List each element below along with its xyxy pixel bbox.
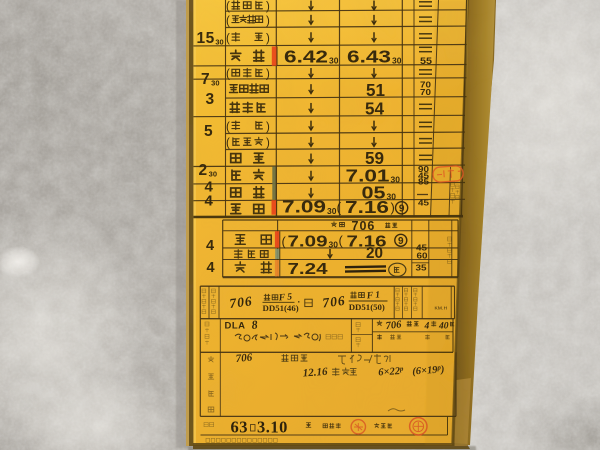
- svg-text:63: 63: [231, 417, 249, 436]
- svg-text:4: 4: [205, 193, 214, 210]
- svg-text:30: 30: [391, 175, 401, 185]
- svg-text:7.09: 7.09: [282, 197, 326, 217]
- svg-text:51: 51: [366, 80, 385, 100]
- svg-text:5: 5: [204, 123, 213, 140]
- svg-text:): ): [266, 33, 270, 45]
- svg-text:30: 30: [327, 206, 337, 216]
- svg-text:DD51(46): DD51(46): [263, 303, 299, 313]
- svg-text:2: 2: [199, 162, 208, 179]
- svg-text:F 1: F 1: [365, 290, 380, 301]
- svg-text:6.42: 6.42: [284, 47, 328, 67]
- svg-text:30: 30: [209, 170, 217, 179]
- svg-text:20: 20: [366, 245, 383, 262]
- svg-text:7: 7: [201, 71, 210, 88]
- svg-text:3.10: 3.10: [257, 417, 288, 436]
- svg-text:(: (: [226, 16, 230, 28]
- svg-text:7.16: 7.16: [345, 197, 389, 217]
- svg-text:(: (: [226, 1, 230, 13]
- svg-text:(: (: [226, 33, 230, 45]
- svg-text:15: 15: [197, 30, 215, 47]
- svg-text:): ): [266, 16, 270, 28]
- svg-text:12.16: 12.16: [302, 366, 328, 380]
- svg-text:30: 30: [329, 240, 339, 250]
- svg-text:7.24: 7.24: [288, 261, 328, 278]
- svg-text:55: 55: [420, 56, 432, 66]
- svg-text:DLA: DLA: [225, 320, 246, 331]
- svg-text:40: 40: [438, 322, 449, 332]
- svg-text:3: 3: [206, 91, 215, 108]
- svg-text:706: 706: [385, 319, 403, 332]
- svg-text:85: 85: [418, 177, 429, 187]
- svg-text:706: 706: [235, 352, 253, 365]
- svg-text:9: 9: [399, 203, 405, 214]
- svg-text:): ): [391, 200, 395, 215]
- svg-text:(: (: [339, 233, 344, 248]
- svg-text:60: 60: [417, 250, 428, 260]
- svg-text:DD51(50): DD51(50): [349, 302, 385, 312]
- svg-text:706: 706: [322, 293, 347, 311]
- svg-text:54: 54: [365, 99, 384, 119]
- svg-text:(: (: [226, 121, 230, 133]
- svg-text:): ): [266, 69, 270, 81]
- svg-text:(: (: [226, 69, 230, 81]
- svg-text:4: 4: [206, 238, 214, 254]
- svg-text:706: 706: [229, 293, 254, 311]
- svg-text:30: 30: [392, 56, 402, 66]
- svg-text:30: 30: [215, 38, 223, 47]
- svg-text:70: 70: [420, 87, 431, 97]
- svg-text:): ): [266, 121, 270, 133]
- svg-text:4: 4: [207, 260, 215, 276]
- svg-text:6.43: 6.43: [347, 47, 391, 67]
- svg-text:706: 706: [352, 219, 376, 233]
- svg-text:(: (: [282, 234, 287, 249]
- svg-text:(: (: [337, 199, 342, 215]
- svg-text:): ): [266, 138, 270, 150]
- svg-text:35: 35: [416, 263, 427, 273]
- svg-text:30: 30: [211, 79, 219, 88]
- svg-text:45: 45: [418, 197, 429, 207]
- svg-text:): ): [266, 1, 270, 13]
- svg-text:4: 4: [424, 322, 430, 332]
- svg-text:KM.H: KM.H: [435, 306, 448, 312]
- svg-text:·: ·: [298, 297, 301, 307]
- svg-text:(: (: [226, 138, 230, 150]
- svg-text:7.09: 7.09: [288, 233, 328, 250]
- svg-text:9: 9: [398, 236, 404, 247]
- svg-text:30: 30: [329, 56, 339, 66]
